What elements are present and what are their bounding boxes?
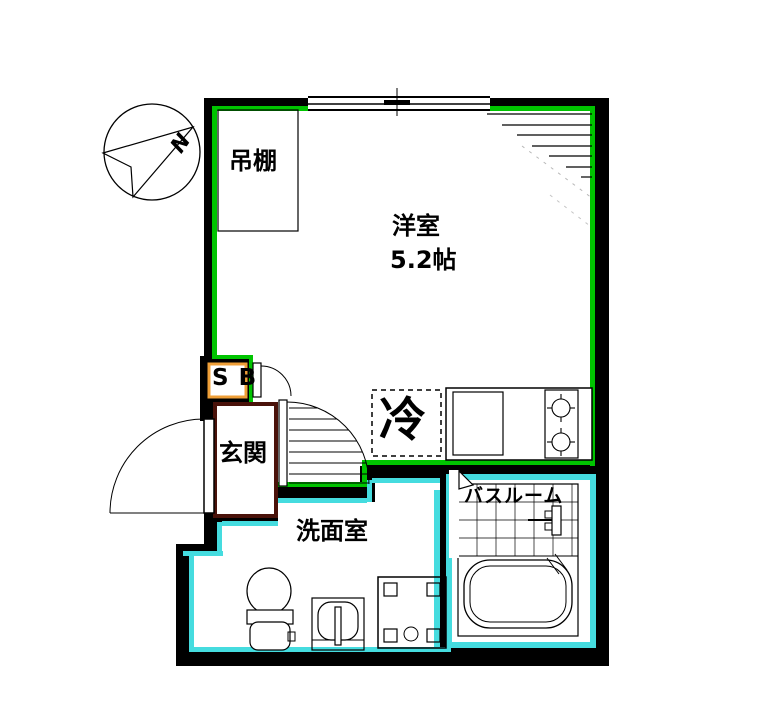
wall-above-entry-door — [200, 402, 214, 421]
cyan-step-vertical — [217, 522, 222, 555]
refrigerator-label: 冷 — [379, 397, 426, 444]
shoe-box-label: S B — [212, 367, 257, 390]
kitchen-counter — [446, 388, 592, 460]
cyan-left — [189, 553, 194, 652]
green-sb-top — [212, 355, 253, 359]
bathroom-door-gap — [449, 470, 459, 558]
cyan-genkan-bottom — [222, 521, 278, 526]
room-door-leaf — [279, 400, 287, 486]
wall-left-washroom — [176, 544, 189, 666]
toilet — [247, 568, 295, 650]
sb-door-arc — [261, 366, 291, 396]
washroom-label: 洗面室 — [296, 519, 368, 543]
window — [308, 88, 490, 116]
floorplan-linework — [0, 0, 772, 722]
floor-plan: 吊棚 洋室 5.2帖 S B 玄関 冷 バスルーム 洗面室 N — [0, 0, 772, 722]
cyan-kitchen — [372, 478, 440, 483]
washbasin — [312, 598, 364, 650]
entrance-door-arc — [110, 419, 204, 513]
western-room-label: 洋室 — [392, 214, 440, 238]
green-left — [212, 108, 217, 358]
entrance-label: 玄関 — [219, 441, 267, 465]
wall-right-main — [595, 98, 609, 484]
slope-hatch-lines — [487, 114, 592, 226]
washer-pan-drain — [404, 627, 418, 641]
cyan-step-area — [278, 498, 367, 503]
entrance-door-leaf — [204, 419, 214, 513]
green-top-right — [488, 106, 595, 111]
window-center-dash — [384, 100, 410, 105]
western-room-size: 5.2帖 — [390, 248, 457, 272]
wall-bottom — [176, 652, 609, 666]
room-door-arc — [287, 402, 369, 484]
counter-outline — [446, 388, 592, 460]
washroom-fixtures — [247, 568, 446, 650]
entry-step-hatch — [289, 408, 369, 483]
hanging-shelf-label: 吊棚 — [229, 149, 277, 173]
bathroom-label: バスルーム — [464, 487, 563, 506]
cyan-bathwall-west — [434, 490, 440, 647]
